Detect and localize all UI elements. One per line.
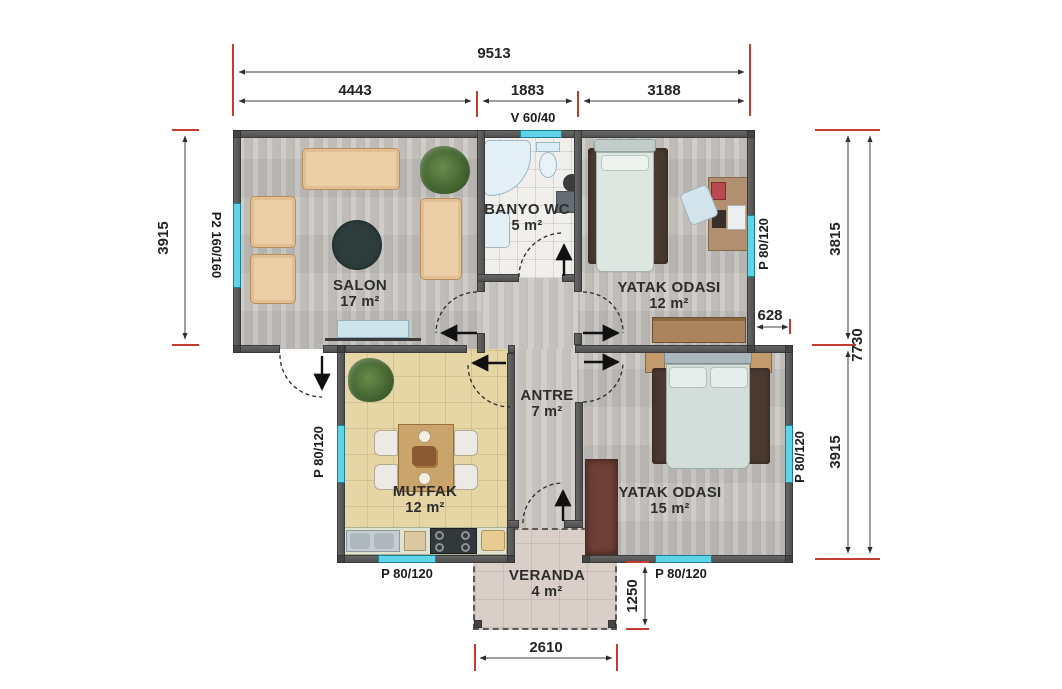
room-area: 12 m² xyxy=(364,500,486,517)
room-name: YATAK ODASI xyxy=(599,279,739,296)
wall-kitchen-right xyxy=(507,353,515,563)
stove-burner xyxy=(435,531,444,540)
coffee-table xyxy=(332,220,382,270)
wall-joint xyxy=(582,555,590,563)
dim-salon-width: 4443 xyxy=(233,83,477,99)
room-label-salon: SALON 17 m² xyxy=(298,277,422,311)
wall-joint xyxy=(337,555,345,563)
desk-notebook xyxy=(711,182,726,200)
toilet xyxy=(536,142,560,152)
window-salon-left xyxy=(233,203,241,288)
room-area: 7 m² xyxy=(487,404,607,421)
dresser xyxy=(652,317,746,343)
wall-joint xyxy=(233,130,241,138)
window-label-salon-left: P2 160/160 xyxy=(209,195,223,295)
wall-salon-right xyxy=(477,333,485,353)
single-bed-headboard xyxy=(594,139,656,152)
room-area: 5 m² xyxy=(467,218,587,235)
room-name: BANYO WC xyxy=(467,201,587,218)
dim-salon-height: 3915 xyxy=(156,198,172,278)
hallway-floor-upper xyxy=(481,278,578,349)
dim-right-upper: 3815 xyxy=(828,199,844,279)
sink-basin xyxy=(350,533,370,549)
wall-bedroom2-top xyxy=(575,345,793,353)
dining-centerpiece xyxy=(412,446,436,466)
room-label-veranda: VERANDA 4 m² xyxy=(487,567,607,601)
wall-entry xyxy=(564,520,583,528)
cutting-board xyxy=(404,531,426,551)
potted-plant xyxy=(348,358,394,402)
pillow xyxy=(601,155,649,171)
window-bath-top xyxy=(520,130,562,138)
armchair xyxy=(250,196,296,248)
wall-joint xyxy=(747,345,755,353)
window-label-bedroom2-right: P 80/120 xyxy=(793,407,807,507)
room-area: 12 m² xyxy=(599,296,739,313)
hallway-floor-lower xyxy=(509,349,579,528)
toilet-bowl xyxy=(539,152,557,178)
room-name: MUTFAK xyxy=(364,483,486,500)
room-name: ANTRE xyxy=(487,387,607,404)
wall-entry xyxy=(507,520,519,528)
window-label-kitchen-left: P 80/120 xyxy=(312,402,326,502)
dim-veranda-height: 1250 xyxy=(625,546,641,646)
wall-joint xyxy=(785,555,793,563)
armchair xyxy=(250,254,296,304)
wall-joint xyxy=(785,345,793,353)
laptop xyxy=(727,205,746,230)
room-label-mutfak: MUTFAK 12 m² xyxy=(364,483,486,517)
sofa-three-seat xyxy=(302,148,400,190)
window-kitchen-bottom xyxy=(378,555,436,563)
stove-burner xyxy=(461,531,470,540)
pillow xyxy=(710,367,748,388)
dining-plate xyxy=(418,430,431,443)
potted-plant xyxy=(420,146,470,194)
window-label-kitchen-bottom: P 80/120 xyxy=(352,567,462,581)
wall-hall-right-upper xyxy=(574,333,582,345)
room-label-bedroom1: YATAK ODASI 12 m² xyxy=(599,279,739,313)
window-label-top: V 60/40 xyxy=(473,111,593,125)
room-name: SALON xyxy=(298,277,422,294)
wall-top xyxy=(233,130,755,138)
room-name: VERANDA xyxy=(487,567,607,584)
window-bedroom1-right xyxy=(747,215,755,277)
room-area: 17 m² xyxy=(298,294,422,311)
dim-total-height: 7730 xyxy=(850,305,866,385)
wall-joint xyxy=(337,345,345,353)
dim-right-lower: 3915 xyxy=(828,412,844,492)
room-area: 15 m² xyxy=(600,501,740,518)
window-bedroom2-bottom xyxy=(655,555,712,563)
dim-bedroom1-width: 3188 xyxy=(578,83,750,99)
dim-total-width: 9513 xyxy=(233,46,755,62)
dim-veranda-width: 2610 xyxy=(475,640,617,656)
chair xyxy=(374,430,398,456)
pillow xyxy=(669,367,707,388)
dim-bath-width: 1883 xyxy=(477,83,578,99)
tv-stand xyxy=(337,320,409,338)
wall-joint xyxy=(233,345,241,353)
sink-basin xyxy=(374,533,394,549)
wall-kitchen-top xyxy=(508,345,515,353)
wall-joint xyxy=(507,555,515,563)
window-kitchen-left xyxy=(337,425,345,483)
stove-burner xyxy=(435,543,444,552)
room-label-bedroom2: YATAK ODASI 15 m² xyxy=(600,484,740,518)
wall-kitchen-top xyxy=(345,345,467,353)
room-area: 4 m² xyxy=(487,584,607,601)
wall-bath-bottom xyxy=(477,274,519,282)
room-label-antre: ANTRE 7 m² xyxy=(487,387,607,421)
bread-box xyxy=(481,530,505,551)
room-name: YATAK ODASI xyxy=(600,484,740,501)
chair xyxy=(454,430,478,456)
veranda-post xyxy=(474,620,482,628)
floor-plan: 9513 4443 1883 3188 V 60/40 3915 P2 160/… xyxy=(0,0,1062,689)
stove-burner xyxy=(461,543,470,552)
window-label-bedroom2-bottom: P 80/120 xyxy=(626,567,736,581)
sofa-two-seat xyxy=(420,198,462,280)
veranda-post xyxy=(608,620,616,628)
dim-offset: 628 xyxy=(747,308,793,324)
window-label-bedroom1-right: P 80/120 xyxy=(757,194,771,294)
tv-panel xyxy=(325,338,421,341)
room-label-banyo: BANYO WC 5 m² xyxy=(467,201,587,235)
wall-joint xyxy=(747,130,755,138)
